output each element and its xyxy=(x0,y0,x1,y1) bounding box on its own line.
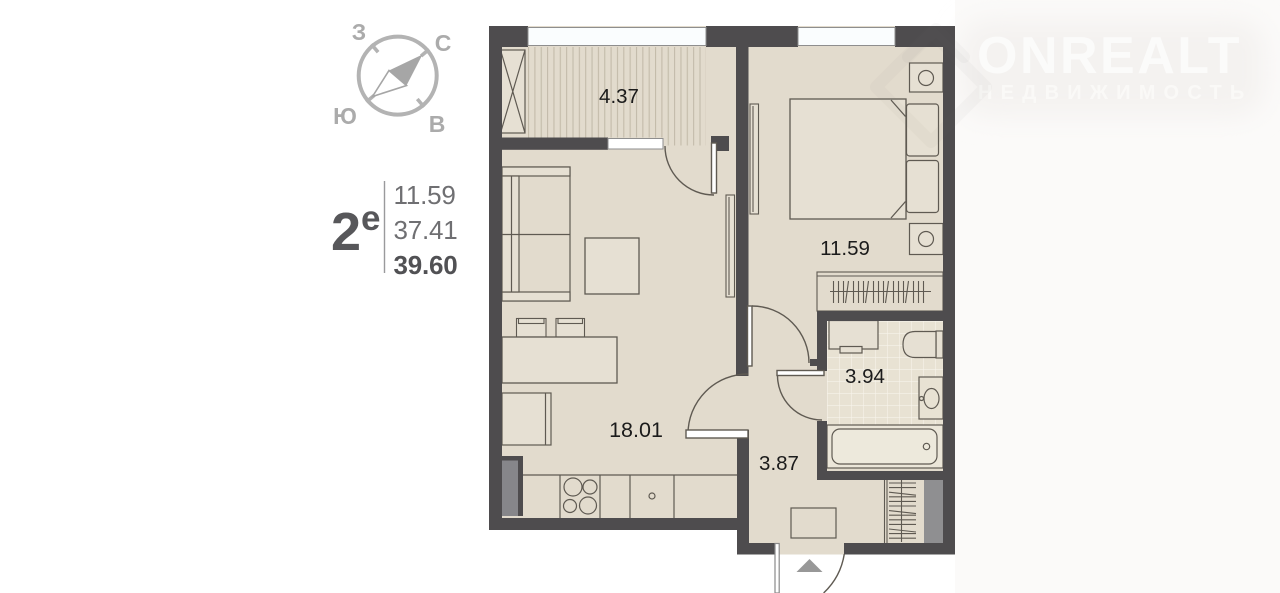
svg-text:В: В xyxy=(429,111,446,137)
svg-text:3.87: 3.87 xyxy=(759,452,799,475)
svg-text:НЕДВИЖИМОСТЬ: НЕДВИЖИМОСТЬ xyxy=(978,82,1252,104)
svg-text:ONREALT: ONREALT xyxy=(977,27,1242,85)
svg-text:3.94: 3.94 xyxy=(845,365,885,388)
svg-text:З: З xyxy=(352,19,366,45)
svg-text:18.01: 18.01 xyxy=(609,418,663,442)
svg-text:С: С xyxy=(435,30,452,56)
svg-text:4.37: 4.37 xyxy=(599,85,639,108)
svg-text:37.41: 37.41 xyxy=(394,215,458,245)
svg-text:Ю: Ю xyxy=(333,103,357,129)
svg-text:11.59: 11.59 xyxy=(820,237,870,260)
svg-text:11.59: 11.59 xyxy=(394,180,456,210)
svg-text:39.60: 39.60 xyxy=(394,250,458,280)
